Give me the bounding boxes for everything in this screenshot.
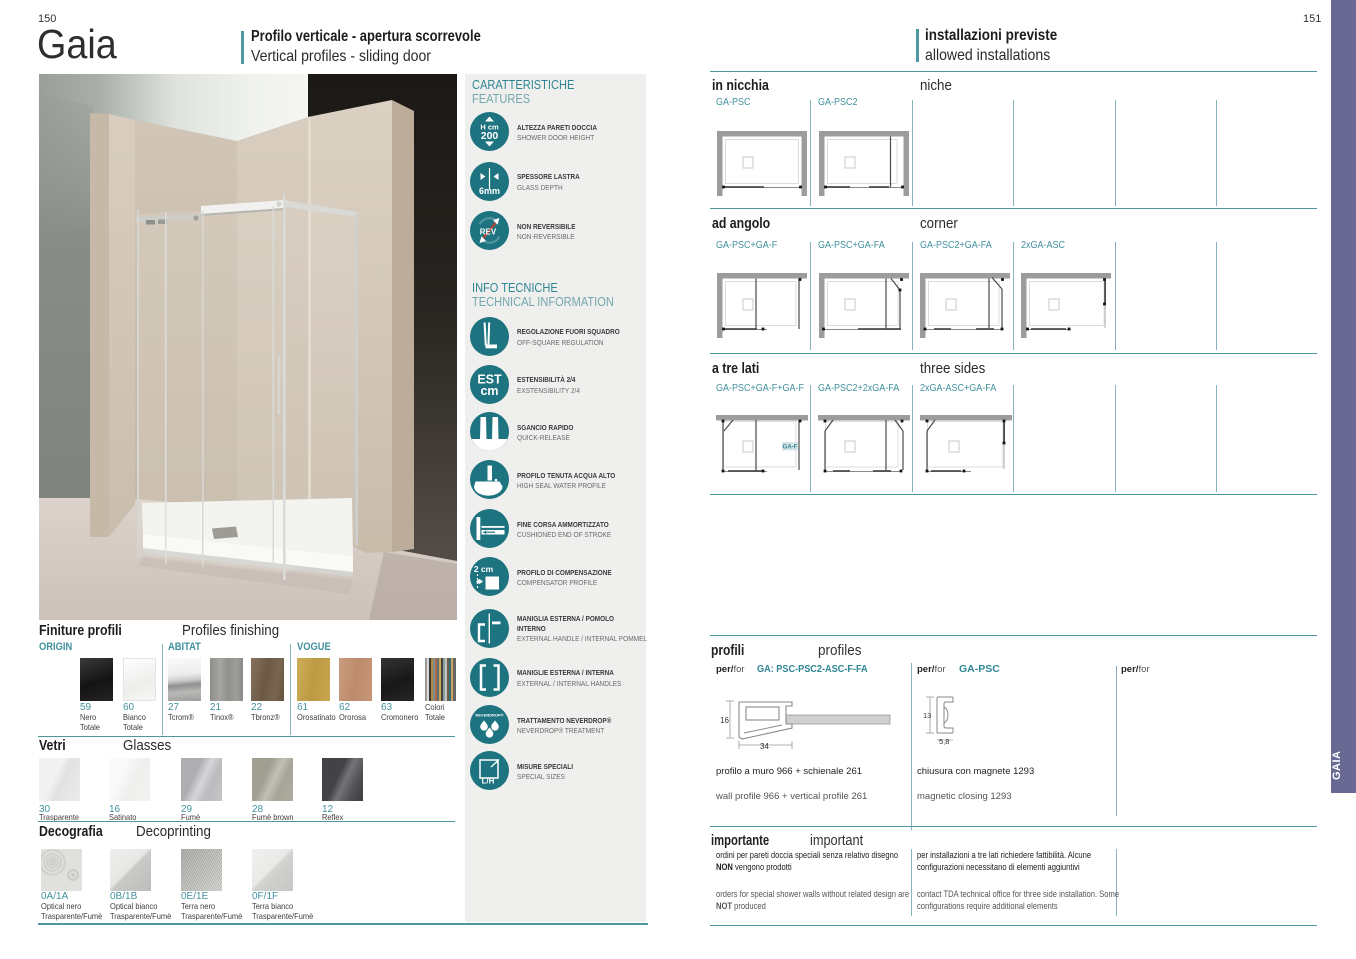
svg-text:REV: REV <box>480 228 497 237</box>
svg-text:200: 200 <box>481 130 499 142</box>
svg-text:13: 13 <box>923 711 931 720</box>
svg-text:2 cm: 2 cm <box>474 564 494 574</box>
svg-text:GA-F: GA-F <box>783 445 798 451</box>
svg-text:6mm: 6mm <box>479 186 500 196</box>
svg-text:NEVERDROP®: NEVERDROP® <box>475 713 503 718</box>
svg-text:cm: cm <box>480 384 498 398</box>
svg-text:L/H: L/H <box>482 777 495 786</box>
svg-text:5,8: 5,8 <box>939 737 949 746</box>
svg-text:34: 34 <box>760 742 769 751</box>
svg-text:16: 16 <box>720 716 729 725</box>
